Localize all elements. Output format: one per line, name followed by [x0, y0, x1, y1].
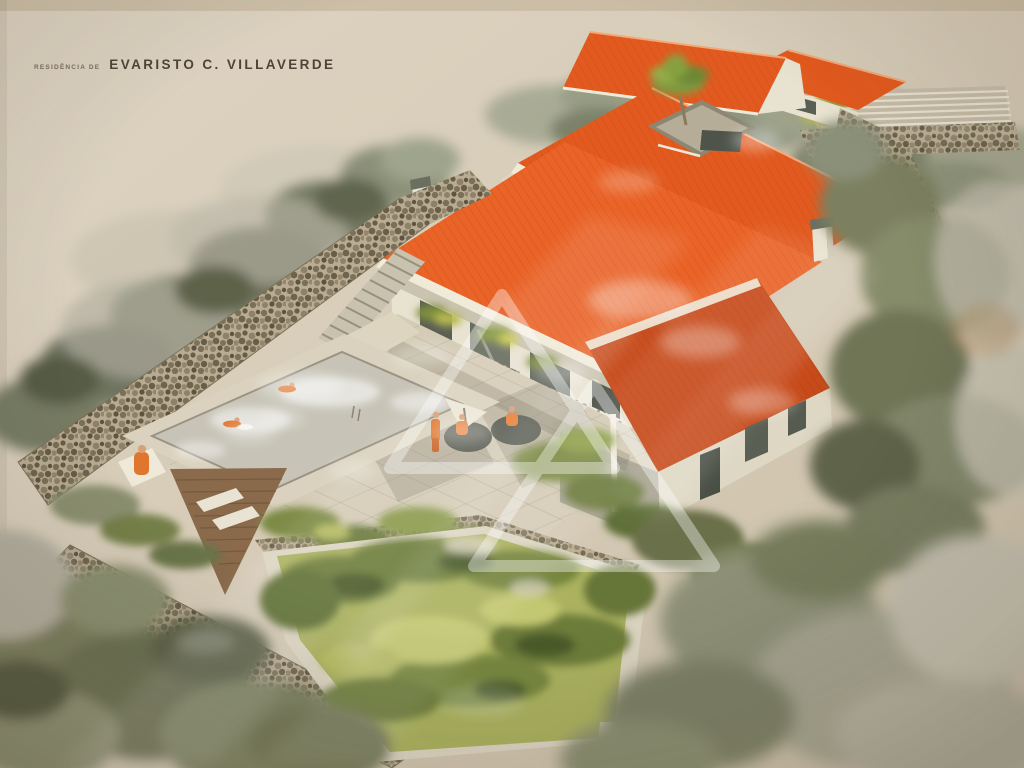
rendering-canvas [0, 0, 1024, 768]
caption-name: EVARISTO C. VILLAVERDE [109, 57, 335, 72]
photo-of-watercolor-rendering: RESIDÊNCIA DE EVARISTO C. VILLAVERDE [0, 0, 1024, 768]
photo-vignette [0, 0, 1024, 768]
caption: RESIDÊNCIA DE EVARISTO C. VILLAVERDE [34, 57, 335, 72]
caption-prefix: RESIDÊNCIA DE [34, 64, 100, 71]
